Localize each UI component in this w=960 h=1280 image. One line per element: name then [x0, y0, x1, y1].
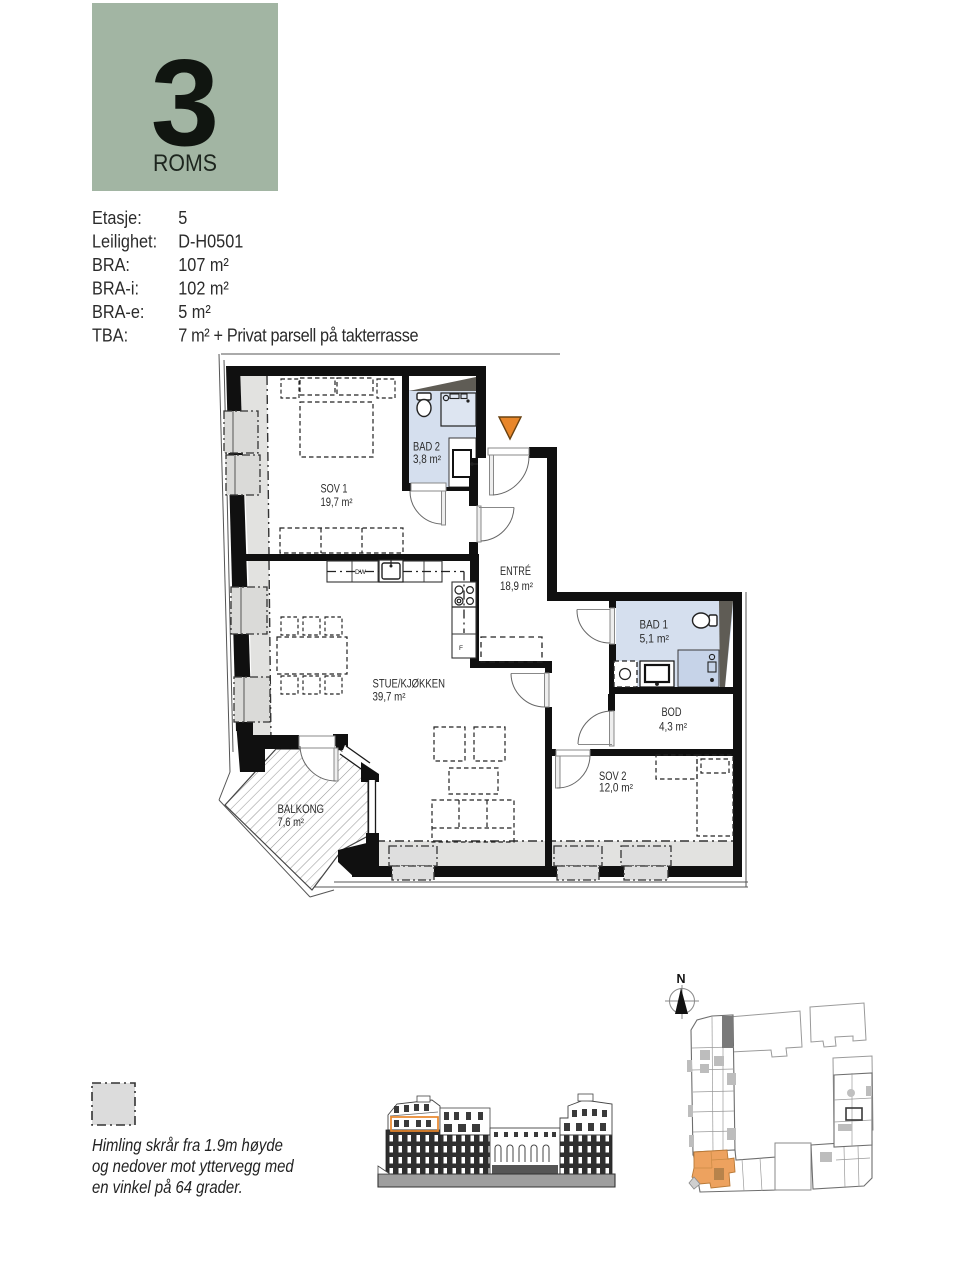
svg-text:7,6 m²: 7,6 m²: [278, 817, 305, 829]
svg-text:19,7 m²: 19,7 m²: [321, 497, 353, 509]
svg-text:DW: DW: [355, 569, 367, 576]
svg-text:Etasje:: Etasje:: [92, 207, 142, 228]
svg-text:BRA-i:: BRA-i:: [92, 278, 139, 299]
svg-text:SOV 2: SOV 2: [599, 771, 627, 783]
svg-text:BRA-e:: BRA-e:: [92, 301, 144, 322]
svg-text:3,8 m²: 3,8 m²: [413, 454, 441, 466]
svg-text:Leilighet:: Leilighet:: [92, 231, 157, 252]
svg-text:39,7 m²: 39,7 m²: [373, 692, 406, 704]
svg-text:BAD 2: BAD 2: [413, 442, 440, 454]
svg-text:5 m²: 5 m²: [178, 301, 211, 322]
svg-text:107 m²: 107 m²: [178, 254, 229, 275]
svg-text:BRA:: BRA:: [92, 254, 130, 275]
svg-text:N: N: [676, 972, 685, 986]
svg-text:og nedover mot yttervegg med: og nedover mot yttervegg med: [92, 1157, 295, 1176]
svg-text:7 m² + Privat parsell på takte: 7 m² + Privat parsell på takterrasse: [178, 325, 418, 346]
svg-text:TBA:: TBA:: [92, 325, 128, 346]
svg-text:18,9 m²: 18,9 m²: [500, 581, 533, 593]
svg-text:12,0 m²: 12,0 m²: [599, 783, 633, 795]
svg-text:STUE/KJØKKEN: STUE/KJØKKEN: [373, 679, 446, 691]
svg-text:5,1 m²: 5,1 m²: [640, 634, 670, 646]
svg-text:102 m²: 102 m²: [178, 278, 229, 299]
svg-text:BAD 1: BAD 1: [640, 620, 669, 632]
svg-text:Himling skrår fra 1.9m høyde: Himling skrår fra 1.9m høyde: [92, 1136, 283, 1155]
svg-text:SOV 1: SOV 1: [321, 484, 348, 496]
svg-text:F: F: [459, 645, 463, 652]
svg-text:5: 5: [178, 207, 187, 228]
svg-text:D-H0501: D-H0501: [178, 231, 243, 252]
svg-text:en vinkel på 64 grader.: en vinkel på 64 grader.: [92, 1178, 243, 1197]
svg-text:ROMS: ROMS: [153, 150, 217, 177]
svg-text:ENTRÉ: ENTRÉ: [500, 565, 531, 578]
svg-text:4,3 m²: 4,3 m²: [659, 722, 687, 734]
svg-text:BOD: BOD: [662, 707, 682, 719]
svg-text:BALKONG: BALKONG: [278, 804, 325, 816]
